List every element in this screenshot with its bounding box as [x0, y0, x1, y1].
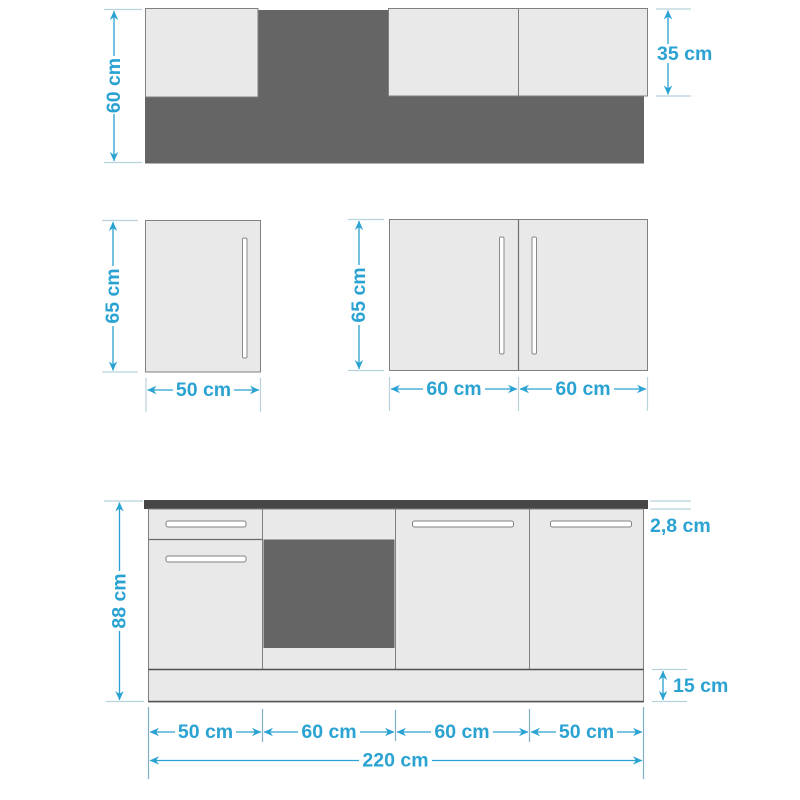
- svg-text:60 cm: 60 cm: [555, 378, 610, 400]
- svg-text:35 cm: 35 cm: [657, 43, 712, 65]
- svg-text:60 cm: 60 cm: [301, 721, 356, 743]
- svg-text:50 cm: 50 cm: [178, 721, 233, 743]
- svg-text:60 cm: 60 cm: [434, 721, 489, 743]
- svg-text:50 cm: 50 cm: [559, 721, 614, 743]
- svg-text:220 cm: 220 cm: [362, 750, 428, 772]
- svg-text:2,8 cm: 2,8 cm: [650, 515, 711, 537]
- svg-text:15 cm: 15 cm: [673, 675, 728, 697]
- svg-text:88 cm: 88 cm: [109, 573, 131, 628]
- svg-text:60 cm: 60 cm: [103, 58, 125, 113]
- svg-text:65 cm: 65 cm: [348, 267, 370, 322]
- svg-text:50 cm: 50 cm: [176, 379, 231, 401]
- svg-text:60 cm: 60 cm: [426, 378, 481, 400]
- svg-text:65 cm: 65 cm: [102, 268, 124, 323]
